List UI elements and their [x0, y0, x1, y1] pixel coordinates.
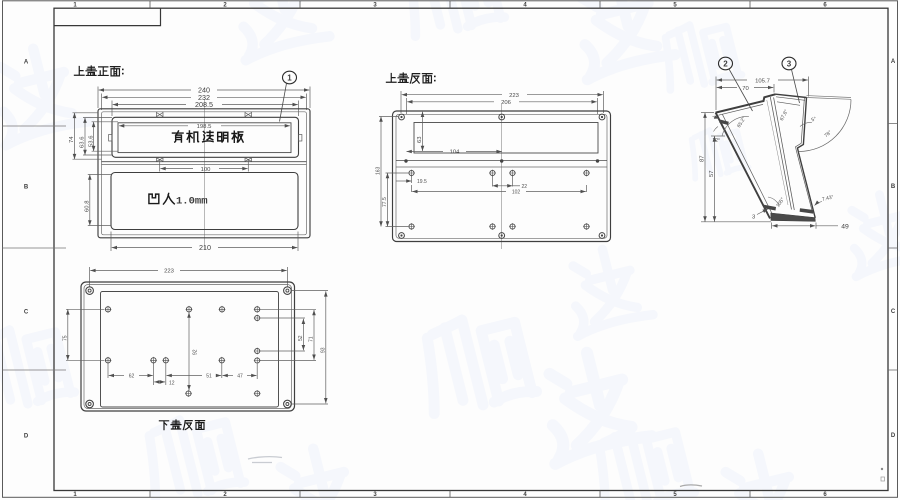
- svg-text:223: 223: [164, 269, 175, 275]
- svg-text:49: 49: [841, 223, 849, 230]
- svg-text:B: B: [891, 184, 896, 190]
- svg-text:93: 93: [320, 347, 326, 353]
- svg-text:A: A: [891, 59, 896, 65]
- svg-text:A: A: [24, 60, 29, 66]
- svg-text:223: 223: [509, 93, 520, 99]
- svg-text:63: 63: [417, 136, 423, 143]
- svg-text:87: 87: [700, 155, 706, 162]
- svg-text:D: D: [891, 433, 896, 439]
- svg-text:104: 104: [450, 150, 461, 156]
- svg-text:63.6: 63.6: [80, 136, 86, 148]
- svg-text:71: 71: [309, 336, 315, 342]
- svg-text:198.5: 198.5: [197, 124, 212, 130]
- svg-text:19.5: 19.5: [417, 179, 427, 185]
- svg-text:B: B: [24, 185, 29, 191]
- svg-text:22°: 22°: [713, 138, 721, 144]
- svg-text:12: 12: [169, 380, 175, 386]
- svg-text:210: 210: [199, 243, 211, 252]
- svg-text:57: 57: [709, 170, 715, 177]
- svg-text:70: 70: [742, 86, 749, 92]
- svg-text:1.0mm: 1.0mm: [176, 196, 208, 208]
- svg-text:62: 62: [129, 374, 135, 380]
- svg-text:208.5: 208.5: [195, 100, 213, 109]
- svg-text:105.7: 105.7: [755, 78, 770, 84]
- svg-text:22: 22: [522, 184, 528, 190]
- svg-text:102: 102: [512, 190, 521, 196]
- svg-text:2: 2: [723, 60, 728, 69]
- svg-text:53.6: 53.6: [88, 135, 94, 147]
- svg-text:100: 100: [201, 167, 212, 173]
- svg-text:3: 3: [787, 60, 792, 69]
- svg-text:92: 92: [193, 349, 199, 355]
- svg-text:74: 74: [69, 136, 75, 143]
- svg-text:C: C: [891, 309, 896, 315]
- svg-text:47: 47: [237, 374, 243, 380]
- svg-text:1: 1: [287, 74, 292, 83]
- svg-text:52: 52: [298, 335, 304, 341]
- svg-text:206: 206: [501, 100, 512, 106]
- svg-text:163: 163: [376, 166, 382, 175]
- svg-text:75: 75: [63, 335, 69, 341]
- svg-text:77.5: 77.5: [382, 197, 388, 207]
- svg-text:51: 51: [206, 374, 212, 380]
- svg-text:D: D: [24, 434, 29, 440]
- svg-text:C: C: [24, 310, 29, 316]
- svg-text:60.8: 60.8: [85, 200, 91, 212]
